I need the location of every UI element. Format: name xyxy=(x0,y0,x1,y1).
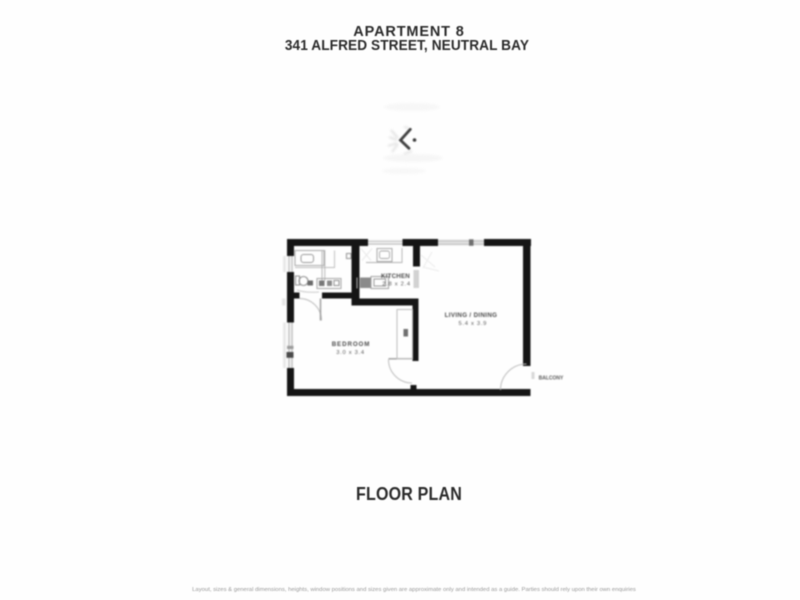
svg-text:BALCONY: BALCONY xyxy=(539,376,564,382)
svg-text:2.8 x 2.4: 2.8 x 2.4 xyxy=(382,281,411,287)
svg-text:LIVING / DINING: LIVING / DINING xyxy=(445,312,498,319)
svg-text:BEDROOM: BEDROOM xyxy=(332,341,371,348)
svg-text:3.0 x 3.4: 3.0 x 3.4 xyxy=(336,350,365,356)
svg-text:5.4 x 3.9: 5.4 x 3.9 xyxy=(459,321,488,327)
svg-text:KITCHEN: KITCHEN xyxy=(381,273,410,280)
